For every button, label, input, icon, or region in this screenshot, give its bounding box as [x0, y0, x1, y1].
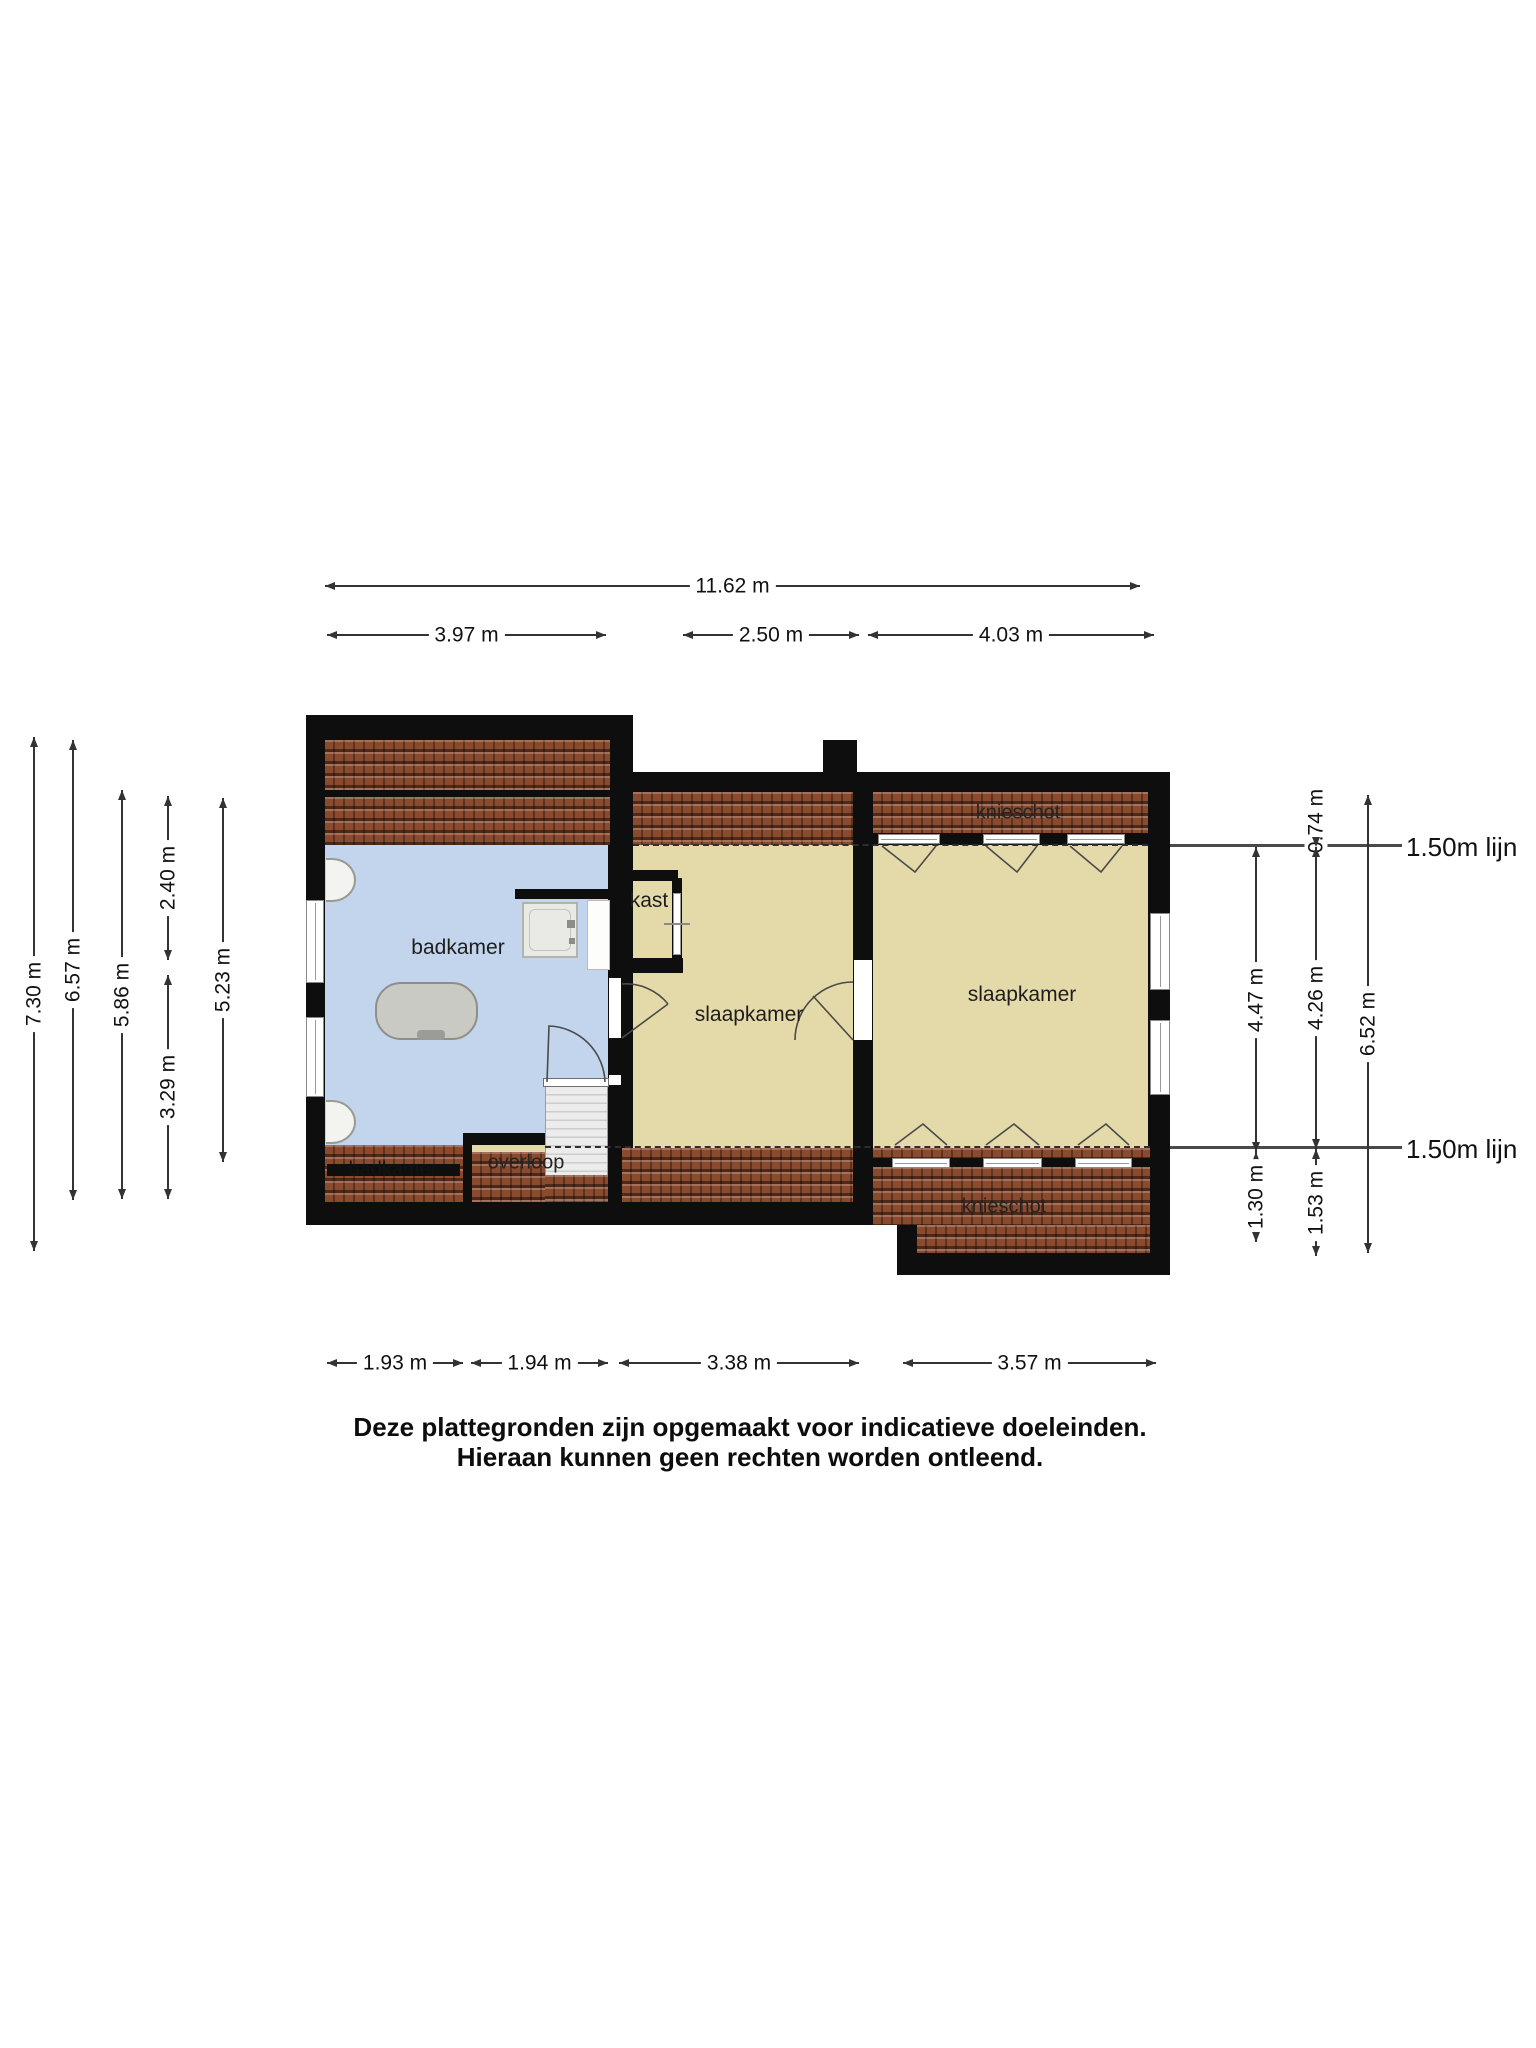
door-stairs-top	[543, 1078, 609, 1087]
dim-right-153: 1.53 m	[1315, 1149, 1317, 1256]
dim-right-130: 1.30 m	[1255, 1152, 1257, 1242]
floorplan-page: badkamer kast slaapkamer slaapkamer over…	[0, 0, 1536, 2048]
overloop-label: overloop	[488, 1152, 565, 1175]
dim-left-730: 7.30 m	[33, 737, 35, 1251]
dim-left-586: 5.86 m	[121, 790, 123, 1199]
badkamer-hidden-label: badkamer	[349, 1159, 438, 1182]
roof-band-middle-top	[633, 792, 853, 845]
dim-bottom-1-label: 1.93 m	[357, 1351, 433, 1374]
knieschot-dash-bottom	[545, 1146, 1150, 1148]
dim-left-730-label: 7.30 m	[22, 956, 45, 1032]
slaapkamer-left-label: slaapkamer	[695, 1003, 804, 1027]
dim-left-657: 6.57 m	[72, 740, 74, 1200]
window-top-3	[1067, 834, 1125, 844]
dim-bottom-1: 1.93 m	[327, 1362, 463, 1364]
dim-right-447-label: 4.47 m	[1244, 961, 1267, 1037]
dim-bottom-2-label: 1.94 m	[501, 1351, 577, 1374]
dim-left-329-label: 3.29 m	[156, 1049, 179, 1125]
shower-fitting-1	[567, 920, 575, 928]
window-bottom-3	[1075, 1158, 1132, 1168]
window-right-2	[1150, 1020, 1170, 1095]
dim-left-329: 3.29 m	[167, 975, 169, 1199]
wall-kast-left	[610, 881, 622, 958]
shower-tray	[522, 902, 578, 958]
window-top-1	[878, 834, 940, 844]
dim-bottom-4: 3.57 m	[903, 1362, 1156, 1364]
disclaimer-line1: Deze plattegronden zijn opgemaakt voor i…	[200, 1412, 1300, 1442]
disclaimer-line2: Hieraan kunnen geen rechten worden ontle…	[200, 1442, 1300, 1472]
dim-top-mid: 2.50 m	[683, 634, 859, 636]
wall-badkamer-kast-upper	[610, 740, 633, 881]
dim-left-523-label: 5.23 m	[211, 942, 234, 1018]
roof-band-topleft-2	[325, 797, 610, 845]
dim-left-240: 2.40 m	[167, 796, 169, 960]
dim-right-652-label: 6.52 m	[1356, 986, 1379, 1062]
dim-top-left-label: 3.97 m	[428, 623, 504, 646]
window-top-2	[983, 834, 1040, 844]
dim-right-426-label: 4.26 m	[1304, 960, 1327, 1036]
door-threshold-stairs	[609, 1075, 621, 1085]
window-right-1	[1150, 913, 1170, 990]
dim-left-240-label: 2.40 m	[156, 840, 179, 916]
dim-left-586-label: 5.86 m	[110, 956, 133, 1032]
dim-right-426: 4.26 m	[1315, 847, 1317, 1149]
roof-band-middle-bottom	[622, 1148, 853, 1202]
wall-overloop-top	[463, 1133, 548, 1145]
dim-top-left: 3.97 m	[327, 634, 606, 636]
roof-band-topleft-1	[325, 740, 610, 790]
line150-top-label: 1.50m lijn	[1406, 832, 1517, 863]
dim-left-657-label: 6.57 m	[61, 932, 84, 1008]
dim-bottom-3-label: 3.38 m	[701, 1351, 777, 1374]
wall-shower-top	[515, 889, 610, 899]
bathtub-faucet	[417, 1030, 445, 1040]
window-left-2	[306, 1017, 324, 1097]
knieschot-bottom-label: knieschot	[962, 1196, 1047, 1219]
dim-right-153-label: 1.53 m	[1304, 1164, 1327, 1240]
line150-bottom-label: 1.50m lijn	[1406, 1134, 1517, 1165]
dim-left-523: 5.23 m	[222, 798, 224, 1162]
dim-total-width: 11.62 m	[325, 585, 1140, 587]
door-kast-handle	[664, 923, 690, 925]
dim-top-right-label: 4.03 m	[973, 623, 1049, 646]
dim-right-652: 6.52 m	[1367, 795, 1369, 1253]
roof-strip-right-bottom	[873, 1148, 1150, 1158]
roof-band-understairs	[545, 1175, 608, 1202]
wall-kast-bottom	[610, 958, 683, 973]
window-bottom-2	[983, 1158, 1042, 1168]
dim-bottom-4-label: 3.57 m	[991, 1351, 1067, 1374]
dim-bottom-2: 1.94 m	[471, 1362, 608, 1364]
dim-top-mid-label: 2.50 m	[733, 623, 809, 646]
dim-right-074: 0.74 m	[1315, 795, 1317, 847]
disclaimer: Deze plattegronden zijn opgemaakt voor i…	[200, 1412, 1300, 1472]
door-divider-slaapkamers	[854, 960, 872, 1040]
dim-right-130-label: 1.30 m	[1244, 1159, 1267, 1235]
kast-label: kast	[630, 889, 669, 913]
window-bottom-1	[892, 1158, 950, 1168]
dim-total-width-label: 11.62 m	[689, 574, 775, 597]
wall-kast-top	[610, 870, 678, 881]
bathroom-cabinet	[587, 900, 610, 970]
roof-band-knieschot-bottom-b	[917, 1225, 1150, 1253]
window-left-1	[306, 900, 324, 983]
shower-fitting-2	[569, 938, 575, 944]
dim-right-447: 4.47 m	[1255, 847, 1257, 1152]
dim-top-right: 4.03 m	[868, 634, 1154, 636]
dim-bottom-3: 3.38 m	[619, 1362, 859, 1364]
knieschot-dash-top	[633, 844, 1148, 846]
knieschot-top-label: knieschot	[976, 802, 1061, 825]
slaapkamer-right-label: slaapkamer	[968, 983, 1077, 1007]
wall-chimney-stub	[823, 740, 857, 792]
door-badkamer-slaapkamer	[609, 978, 621, 1038]
badkamer-label: badkamer	[411, 936, 504, 960]
